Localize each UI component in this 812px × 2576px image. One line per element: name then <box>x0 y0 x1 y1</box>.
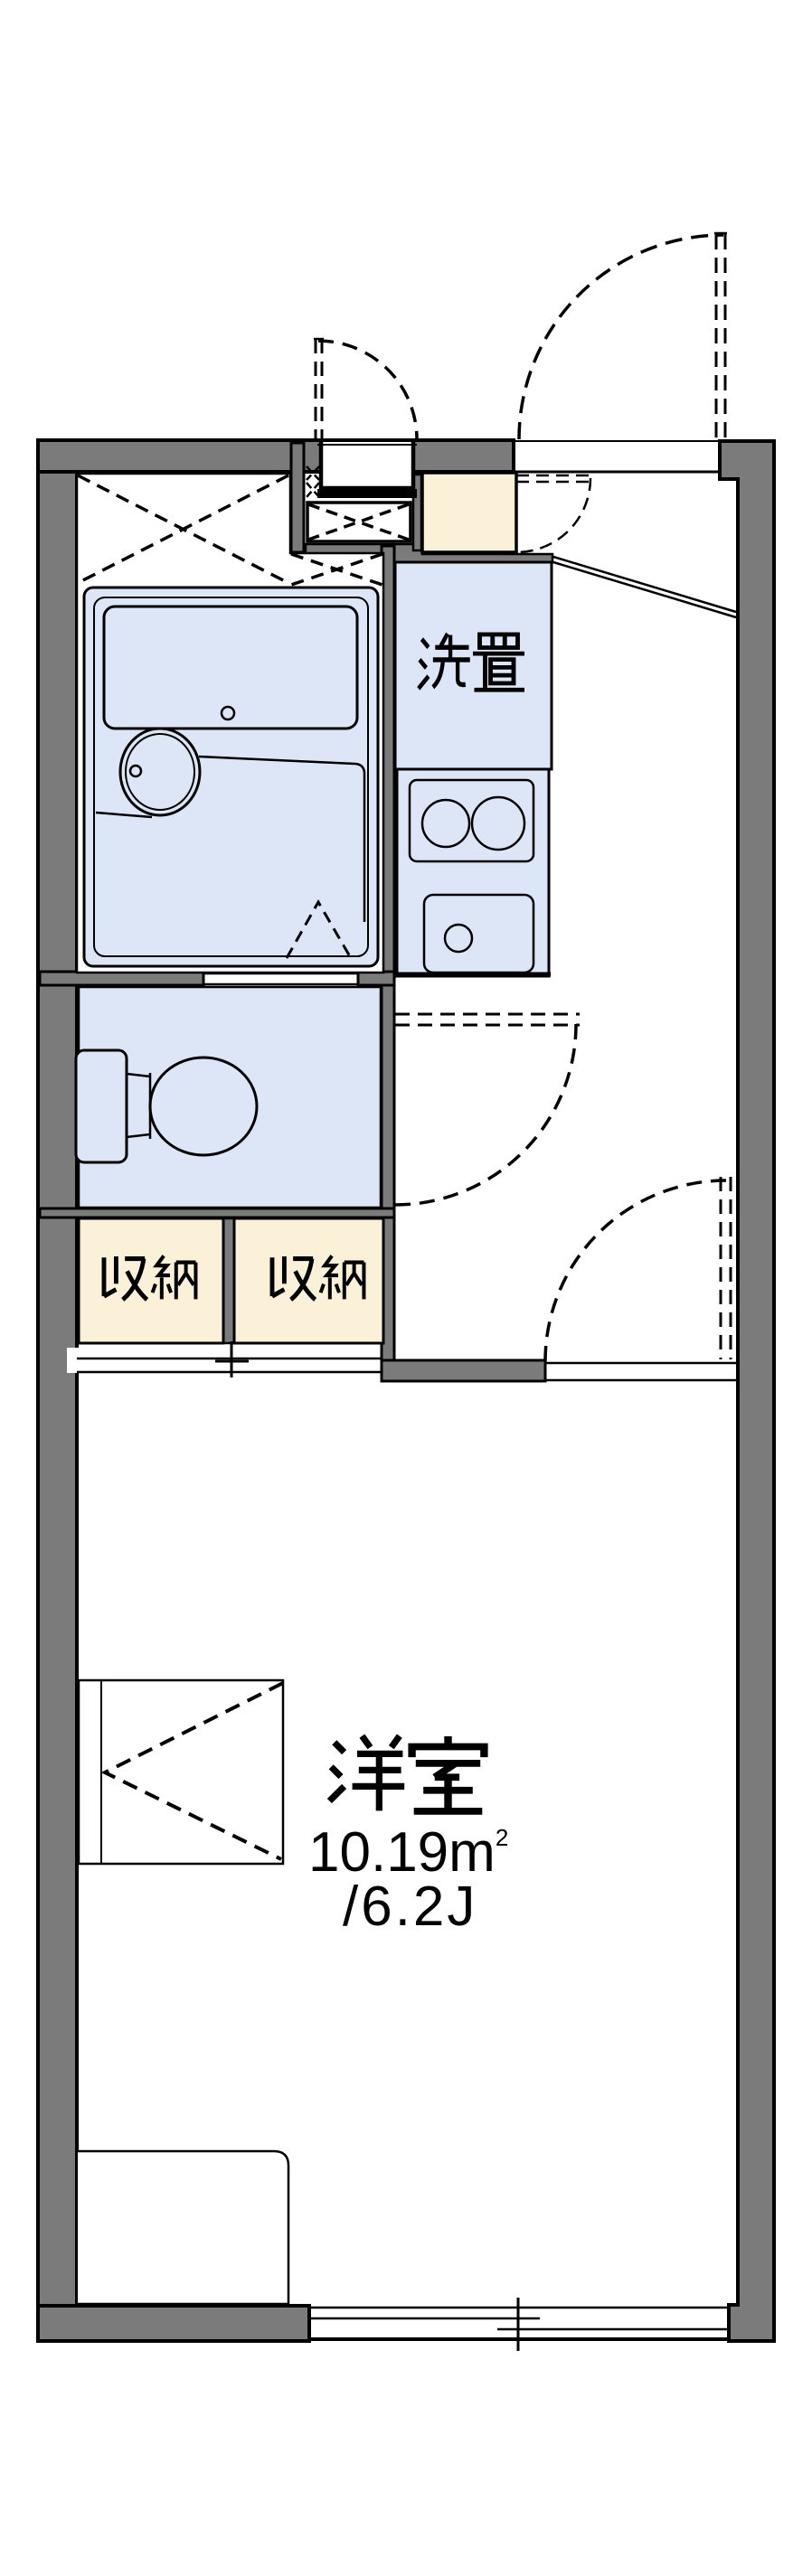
svg-text:/6.2J: /6.2J <box>343 1876 477 1938</box>
svg-text:10.19m2: 10.19m2 <box>308 1821 508 1884</box>
